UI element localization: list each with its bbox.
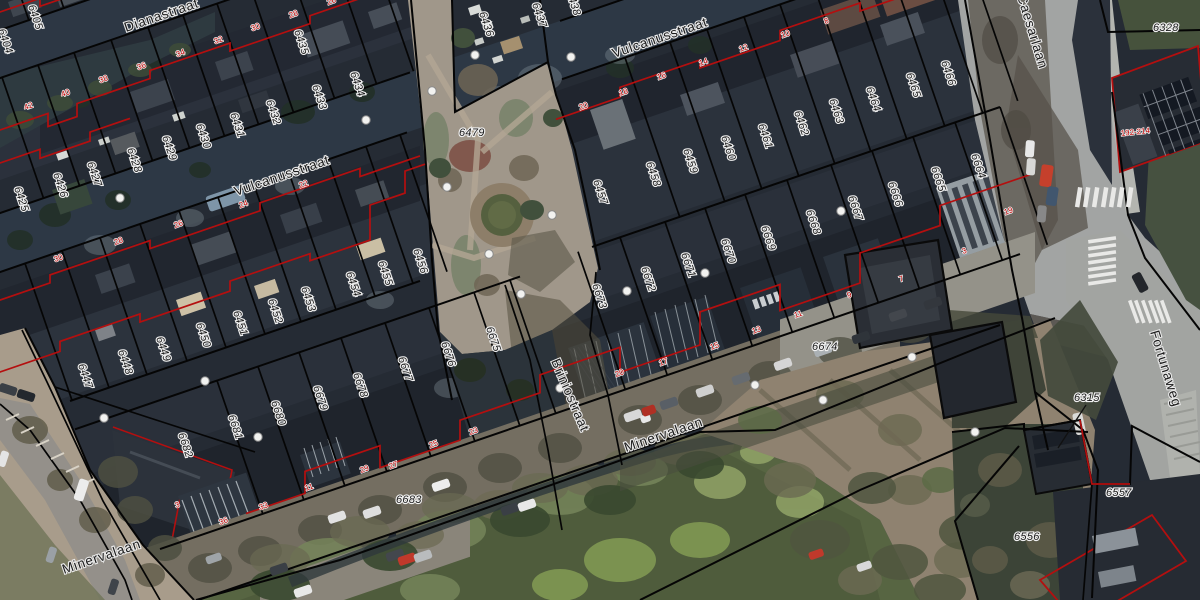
svg-text:6683: 6683	[396, 494, 422, 506]
svg-text:6674: 6674	[812, 341, 838, 353]
svg-text:6479: 6479	[459, 127, 485, 139]
svg-text:6328: 6328	[1153, 22, 1179, 34]
svg-text:6557: 6557	[1106, 487, 1132, 499]
svg-text:6315: 6315	[1074, 392, 1100, 404]
svg-text:6556: 6556	[1014, 531, 1040, 543]
